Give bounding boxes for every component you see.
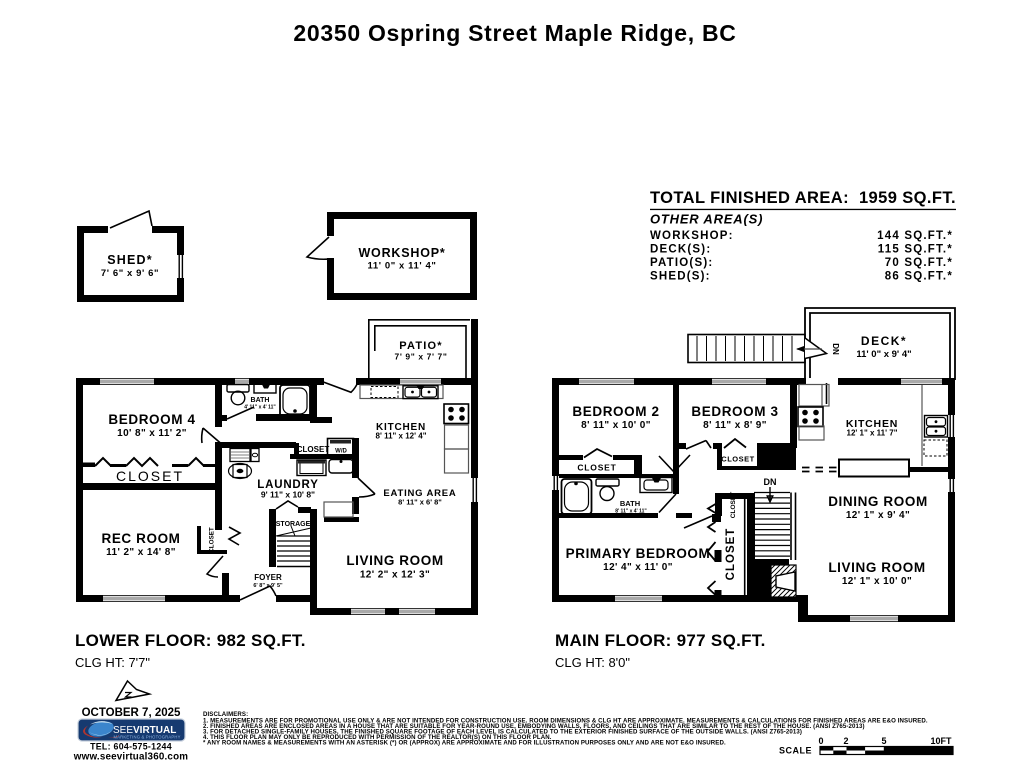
svg-text:WORKSHOP:: WORKSHOP: (650, 230, 734, 242)
svg-text:BEDROOM 4: BEDROOM 4 (108, 412, 195, 427)
svg-text:OTHER AREA(S): OTHER AREA(S) (650, 212, 763, 227)
svg-text:4' 11" x 4' 11": 4' 11" x 4' 11" (244, 405, 276, 411)
svg-text:DECK*: DECK* (861, 334, 907, 348)
svg-text:115 SQ.FT.*: 115 SQ.FT.* (878, 244, 953, 256)
svg-text:BATH: BATH (620, 499, 640, 508)
svg-text:SCALE: SCALE (779, 746, 812, 756)
svg-text:FOYER: FOYER (254, 573, 282, 582)
svg-text:8' 11" x 6' 8": 8' 11" x 6' 8" (398, 498, 442, 507)
svg-text:CLG HT: 7'7": CLG HT: 7'7" (75, 655, 150, 670)
svg-text:86 SQ.FT.*: 86 SQ.FT.* (885, 271, 953, 283)
svg-text:www.seevirtual360.com: www.seevirtual360.com (73, 752, 188, 763)
svg-text:7' 6" x 9' 6": 7' 6" x 9' 6" (101, 268, 159, 279)
svg-text:70 SQ.FT.*: 70 SQ.FT.* (885, 257, 953, 269)
svg-text:CLOSET: CLOSET (116, 468, 184, 484)
svg-text:CLOSET: CLOSET (577, 463, 616, 473)
svg-text:SHED*: SHED* (107, 253, 153, 267)
svg-text:MARKETING & PHOTOGRAPHY: MARKETING & PHOTOGRAPHY (114, 735, 181, 740)
svg-text:8' 11" x 12' 4": 8' 11" x 12' 4" (376, 432, 427, 441)
svg-text:12' 1" x 10' 0": 12' 1" x 10' 0" (842, 576, 912, 587)
svg-text:CLOSET: CLOSET (297, 445, 330, 454)
svg-text:8' 11" x 10' 0": 8' 11" x 10' 0" (581, 420, 651, 431)
svg-text:CLG HT: 8'0": CLG HT: 8'0" (555, 655, 630, 670)
svg-text:12' 2" x 12' 3": 12' 2" x 12' 3" (360, 570, 430, 581)
svg-text:10' 8" x 11' 2": 10' 8" x 11' 2" (117, 428, 187, 439)
svg-text:12' 1" x 9' 4": 12' 1" x 9' 4" (846, 510, 910, 521)
svg-text:DINING ROOM: DINING ROOM (828, 494, 928, 509)
svg-text:REC ROOM: REC ROOM (101, 531, 180, 546)
svg-text:144 SQ.FT.*: 144 SQ.FT.* (877, 230, 953, 242)
svg-text:W/D: W/D (335, 449, 347, 455)
svg-text:WORKSHOP*: WORKSHOP* (358, 246, 445, 260)
svg-text:5: 5 (881, 736, 886, 746)
svg-text:DECK(S):: DECK(S): (650, 244, 711, 256)
svg-text:6' 8" x 9' 5": 6' 8" x 9' 5" (253, 583, 283, 589)
svg-text:CLOSET: CLOSET (209, 527, 216, 553)
svg-text:TEL: 604-575-1244: TEL: 604-575-1244 (90, 742, 172, 752)
svg-text:10FT: 10FT (930, 736, 952, 746)
svg-text:TOTAL FINISHED AREA:: TOTAL FINISHED AREA: (650, 189, 849, 207)
svg-text:LIVING ROOM: LIVING ROOM (346, 553, 443, 568)
svg-text:8' 11" x 8' 9": 8' 11" x 8' 9" (703, 420, 767, 431)
svg-text:11' 0" x 9' 4": 11' 0" x 9' 4" (856, 349, 911, 360)
svg-text:BEDROOM 2: BEDROOM 2 (572, 404, 659, 419)
svg-text:STORAGE: STORAGE (276, 521, 311, 528)
svg-text:PATIO*: PATIO* (399, 340, 442, 352)
svg-text:OCTOBER 7, 2025: OCTOBER 7, 2025 (82, 707, 181, 719)
svg-text:7' 9" x 7' 7": 7' 9" x 7' 7" (395, 352, 448, 362)
svg-text:* ANY ROOM NAMES & MEASUREMENT: * ANY ROOM NAMES & MEASUREMENTS WITH AN … (203, 740, 726, 747)
svg-text:LOWER FLOOR: 982 SQ.FT.: LOWER FLOOR: 982 SQ.FT. (75, 631, 306, 650)
svg-text:12' 4" x 11' 0": 12' 4" x 11' 0" (603, 562, 673, 573)
svg-text:SHED(S):: SHED(S): (650, 271, 711, 283)
svg-text:CLOSET: CLOSET (725, 528, 737, 581)
svg-text:MAIN FLOOR: 977 SQ.FT.: MAIN FLOOR: 977 SQ.FT. (555, 631, 766, 650)
svg-text:CLOSET: CLOSET (730, 492, 737, 518)
svg-text:BEDROOM 3: BEDROOM 3 (691, 404, 778, 419)
svg-text:LIVING ROOM: LIVING ROOM (828, 560, 925, 575)
svg-text:PRIMARY BEDROOM: PRIMARY BEDROOM (566, 546, 711, 561)
svg-text:1959 SQ.FT.: 1959 SQ.FT. (859, 189, 956, 207)
svg-text:DN: DN (764, 477, 777, 487)
svg-text:0: 0 (818, 736, 823, 746)
svg-text:BATH: BATH (251, 397, 270, 404)
svg-text:PATIO(S):: PATIO(S): (650, 257, 713, 269)
svg-text:9' 11" x 10' 8": 9' 11" x 10' 8" (261, 490, 315, 500)
svg-text:12' 1" x 11' 7": 12' 1" x 11' 7" (847, 429, 898, 438)
svg-text:DN: DN (831, 343, 840, 355)
svg-text:11' 0" x 11' 4": 11' 0" x 11' 4" (367, 261, 436, 272)
svg-text:11' 2" x 14' 8": 11' 2" x 14' 8" (106, 547, 176, 558)
svg-text:CLOSET: CLOSET (721, 455, 754, 464)
svg-text:2: 2 (843, 736, 848, 746)
svg-text:20350 Ospring Street Maple Rid: 20350 Ospring Street Maple Ridge, BC (293, 20, 736, 46)
